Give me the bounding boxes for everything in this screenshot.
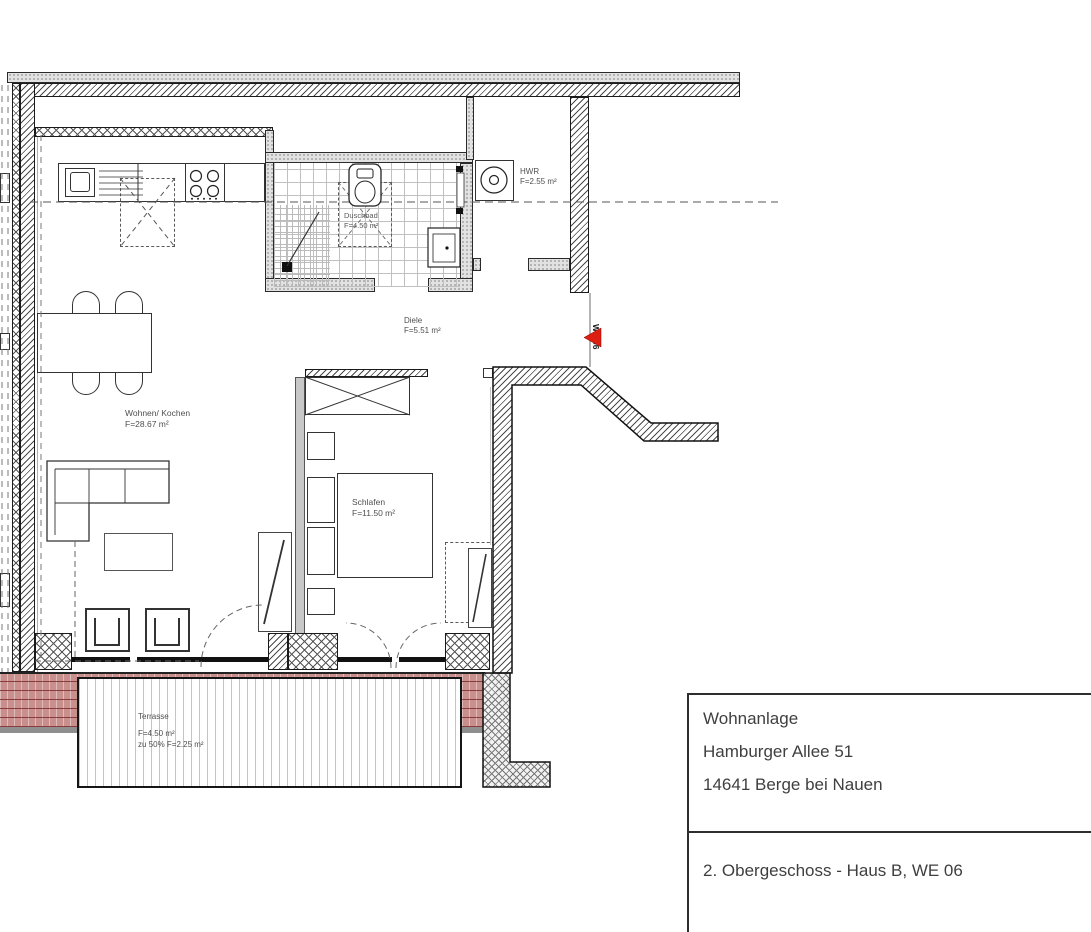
dining-chair (115, 291, 143, 314)
cabinet (307, 477, 335, 523)
dining-table (37, 313, 152, 373)
radiator (258, 532, 292, 632)
room-name: Schlafen (352, 497, 395, 508)
radiator (468, 548, 492, 628)
room-area: F=28.67 m² (125, 419, 190, 430)
wall-right (570, 97, 589, 293)
wall-hwr-left (466, 97, 474, 160)
armchair-seat (154, 618, 180, 646)
wall-entrance-diagonal (493, 367, 718, 673)
wall-bath-right-notch (473, 258, 481, 271)
room-name: HWR (520, 167, 557, 177)
window-sill (137, 657, 268, 662)
room-label-utility: HWR F=2.55 m² (520, 167, 557, 188)
room-name: Wohnen/ Kochen (125, 408, 190, 419)
wall-kitchen-top (35, 127, 273, 137)
stove-icon (185, 163, 225, 202)
cabinet (307, 527, 335, 575)
room-label-bedroom: Schlafen F=11.50 m² (352, 497, 395, 519)
wall-left (20, 83, 35, 672)
room-area-50: zu 50% F=2.25 m² (138, 740, 204, 750)
left-edge-block (0, 573, 10, 607)
nightstand (307, 432, 335, 460)
room-area: F=4.50 m² (344, 221, 378, 231)
window-sill (72, 657, 130, 662)
left-edge-block (0, 333, 10, 350)
kitchen-island-planned (120, 178, 175, 247)
pier-right (445, 633, 490, 670)
wall-top-outer (7, 72, 740, 83)
sofa (47, 461, 169, 541)
drawing-title: 2. Obergeschoss - Haus B, WE 06 (703, 861, 1091, 881)
armchair (85, 608, 130, 652)
window-sill (399, 657, 445, 662)
pier-mid-insulation (288, 633, 338, 670)
room-area: F=5.51 m² (404, 326, 441, 336)
project-name: Wohnanlage (703, 709, 1091, 729)
bed (337, 473, 433, 578)
title-block-address: Wohnanlage Hamburger Allee 51 14641 Berg… (687, 693, 1091, 836)
room-label-terrace: Terrasse F=4.50 m² zu 50% F=2.25 m² (138, 712, 204, 750)
room-area: F=4.50 m² (138, 729, 204, 739)
pier-mid-hatch (268, 633, 288, 670)
window-sill (338, 657, 392, 662)
boundary-line (490, 387, 491, 545)
wall-left-face-line (37, 127, 38, 672)
unit-marker-label: WE 06 (590, 324, 601, 350)
wall-notch (483, 368, 493, 378)
armchair (145, 608, 190, 652)
wall-bath-top (265, 152, 473, 163)
room-name: Duschbad (344, 211, 378, 221)
floor-plan: Wohnen/ Kochen F=28.67 m² Diele F=5.51 m… (0, 0, 1091, 932)
wall-divider-bedroom (295, 377, 305, 639)
wardrobe (305, 377, 410, 415)
nightstand (307, 588, 335, 615)
room-label-hall: Diele F=5.51 m² (404, 316, 441, 337)
wall-bath-right (460, 163, 473, 292)
dining-chair (115, 372, 143, 395)
pier-left (35, 633, 72, 670)
armchair-seat (94, 618, 120, 646)
room-area: F=11.50 m² (352, 508, 395, 519)
wall-left-insulation (12, 83, 20, 672)
room-area: F=2.55 m² (520, 177, 557, 187)
wall-bedroom-top (305, 369, 428, 377)
shower-area (274, 205, 330, 287)
wall-entrance-diagonal-outline (493, 367, 718, 673)
dining-chair (72, 372, 100, 395)
wall-top-inner (25, 83, 740, 97)
coffee-table (104, 533, 173, 571)
room-label-living: Wohnen/ Kochen F=28.67 m² (125, 408, 190, 430)
sink-basin-icon (70, 172, 90, 192)
wall-stub (528, 258, 570, 271)
wall-bottom-right-l (483, 673, 550, 787)
room-name: Terrasse (138, 712, 204, 722)
terrace-deck (77, 677, 462, 788)
room-name: Diele (404, 316, 441, 326)
project-street: Hamburger Allee 51 (703, 742, 1091, 762)
room-label-bath: Duschbad F=4.50 m² (344, 211, 378, 231)
project-city: 14641 Berge bei Nauen (703, 775, 1091, 795)
title-block-drawing: 2. Obergeschoss - Haus B, WE 06 (687, 831, 1091, 932)
washing-machine-icon (475, 160, 514, 201)
dining-chair (72, 291, 100, 314)
left-edge-block (0, 173, 10, 203)
